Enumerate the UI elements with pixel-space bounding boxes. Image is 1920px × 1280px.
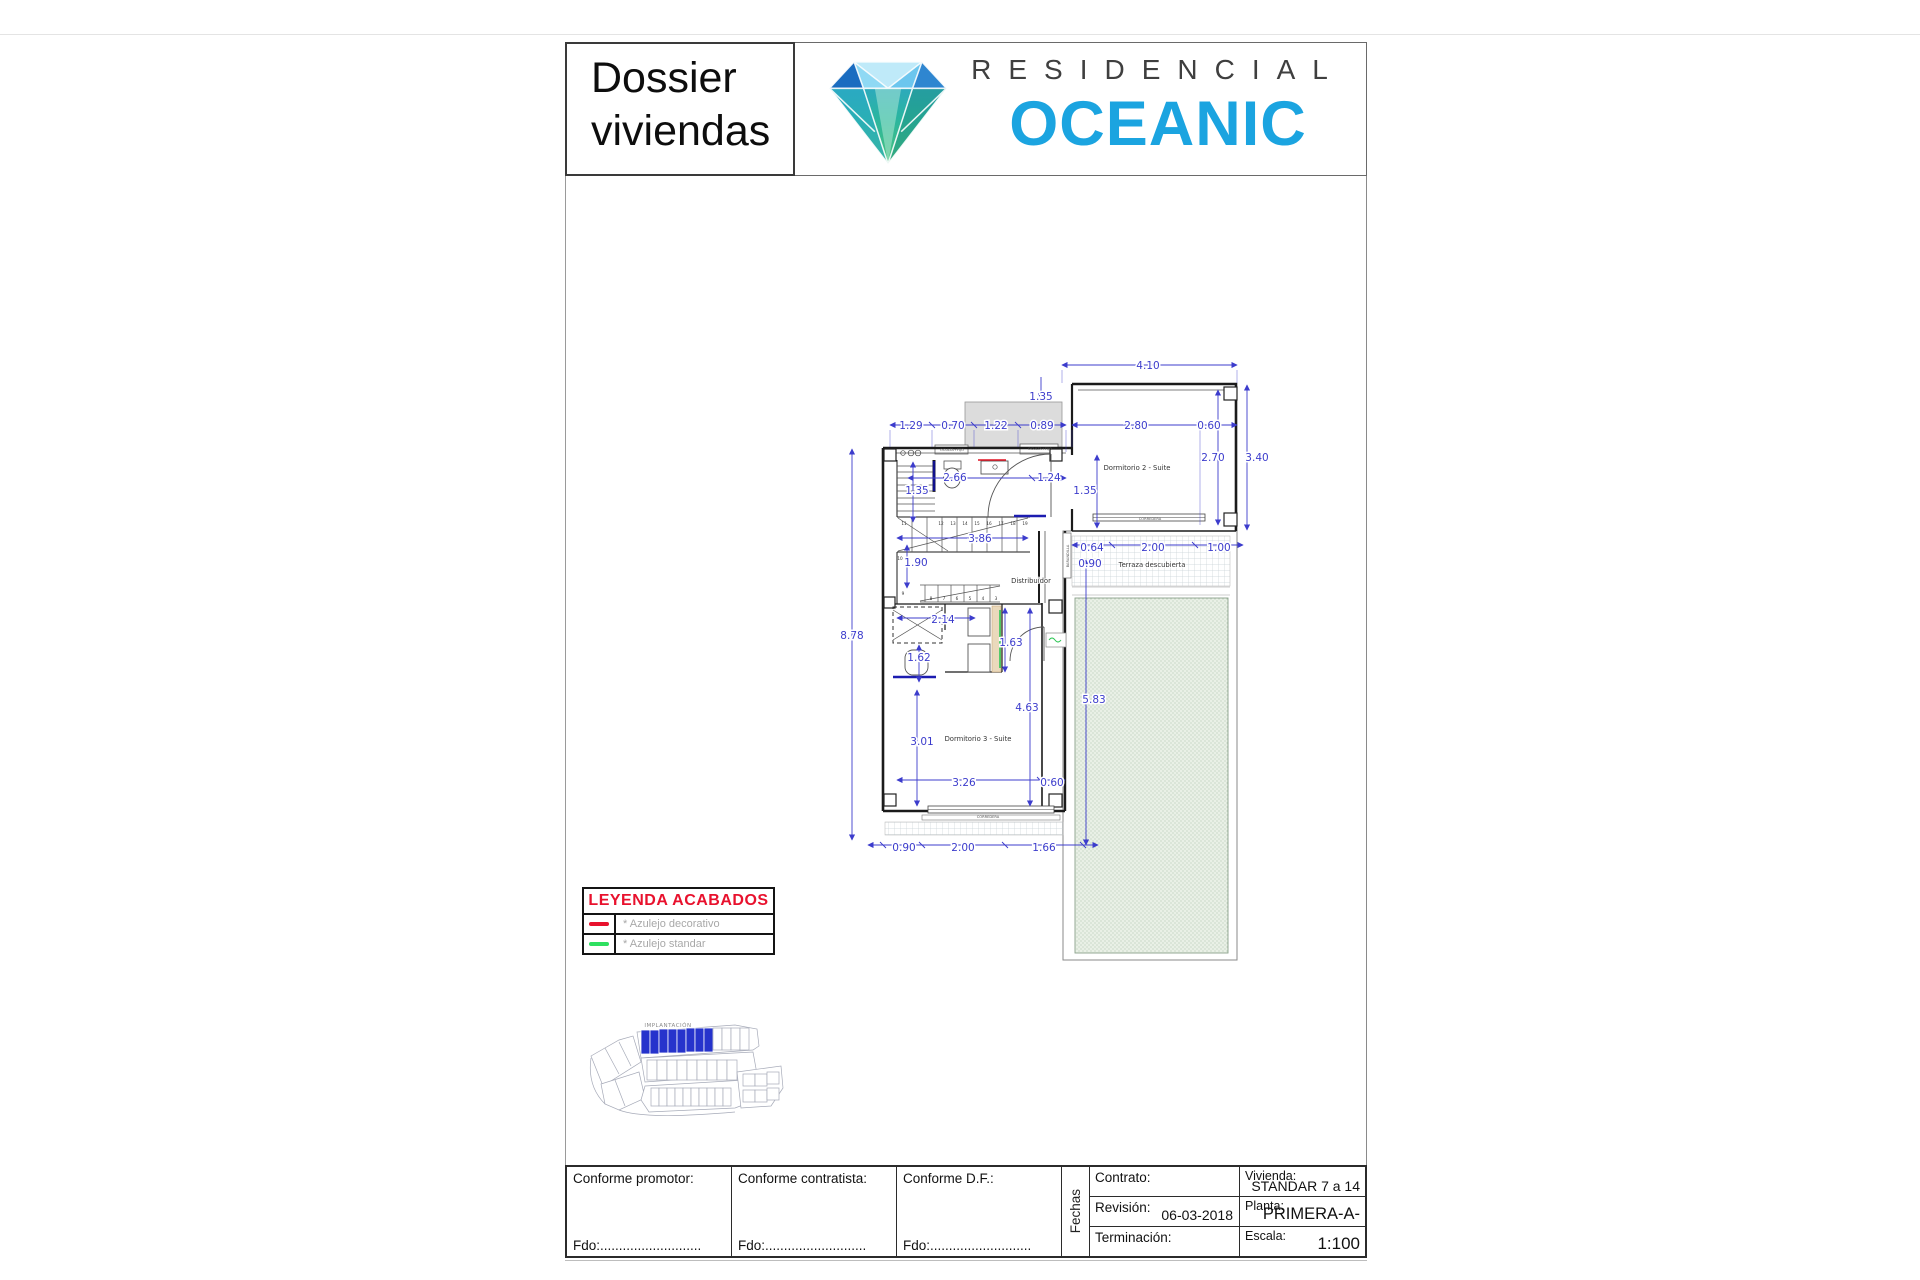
- revision-cell: Revisión: 06-03-2018: [1090, 1197, 1240, 1226]
- signature-fdo: Fdo:...........................: [903, 1238, 1031, 1253]
- dossier-sheet: Dossier viviendas: [0, 0, 1920, 1280]
- scan-hairline: [0, 34, 1920, 35]
- plan-dimension-label: 2.66: [943, 472, 967, 484]
- plan-dimension-label: 4.10: [1136, 360, 1159, 372]
- stair-number: 19: [1022, 521, 1028, 526]
- legend-title: LEYENDA ACABADOS: [588, 892, 768, 909]
- legend-label: * Azulejo standar: [616, 935, 773, 953]
- plan-dimension-label: 0.89: [1030, 420, 1053, 432]
- signature-cell-promotor: Conforme promotor: Fdo:.................…: [567, 1167, 732, 1256]
- room-label: Terraza descubierta: [1118, 561, 1186, 569]
- signature-fdo: Fdo:...........................: [573, 1238, 701, 1253]
- terrace: [1063, 531, 1237, 960]
- row-revision-planta: Revisión: 06-03-2018 Planta: PRIMERA-A-: [1090, 1197, 1365, 1227]
- plan-dimension-label: 0.64: [1080, 542, 1104, 554]
- sheet-bottom-line: [565, 1260, 1367, 1261]
- sheet-left-border: [565, 42, 566, 1165]
- revision-label: Revisión:: [1095, 1200, 1151, 1215]
- plan-dimension-label: 5.83: [1082, 694, 1105, 706]
- escala-cell: Escala: 1:100: [1240, 1227, 1365, 1256]
- legend-row-standar: * Azulejo standar: [584, 933, 773, 953]
- doc-title-line1: Dossier: [591, 52, 793, 105]
- legend-row-decorativo: * Azulejo decorativo: [584, 915, 773, 933]
- title-block: Conforme promotor: Fdo:.................…: [565, 1165, 1367, 1258]
- stair-number: 13: [950, 521, 956, 526]
- plan-dimension-label: 1.63: [999, 637, 1022, 649]
- plan-dimension-label: 0.90: [892, 842, 915, 854]
- revision-value: 06-03-2018: [1161, 1207, 1233, 1223]
- legend-swatch-cell: [584, 935, 616, 953]
- plan-dimension-label: 0.70: [941, 420, 964, 432]
- signature-cell-contratista: Conforme contratista: Fdo:..............…: [732, 1167, 897, 1256]
- title-block-table: Contrato: Vivienda: STANDAR 7 a 14 Revis…: [1090, 1167, 1365, 1256]
- plan-dimension-label: 8.78: [840, 630, 863, 642]
- plan-tiny-label: OCULTA+FIJO: [1028, 447, 1052, 451]
- signature-cell-df: Conforme D.F.: Fdo:.....................…: [897, 1167, 1062, 1256]
- stair-number: 17: [998, 521, 1004, 526]
- brand-text: RESIDENCIAL OCEANIC: [962, 54, 1354, 160]
- room-label: Distribuidor: [1011, 577, 1051, 585]
- plan-dimension-label: 2.00: [951, 842, 974, 854]
- plan-dimension-label: 3.26: [952, 777, 976, 789]
- stair-number: 7: [943, 596, 946, 601]
- legend-title-box: LEYENDA ACABADOS: [582, 887, 775, 915]
- doc-title-line2: viviendas: [591, 105, 793, 158]
- row-terminacion-escala: Terminación: Escala: 1:100: [1090, 1227, 1365, 1256]
- fechas-label: Fechas: [1068, 1189, 1083, 1233]
- legend-swatch-cell: [584, 915, 616, 933]
- room-label: Dormitorio 3 - Suite: [945, 735, 1012, 743]
- signature-label: Conforme promotor:: [573, 1171, 694, 1186]
- plan-dimension-label: 1.90: [904, 557, 927, 569]
- stair-number: 6: [956, 596, 959, 601]
- stair-number: 9: [902, 591, 905, 596]
- row-contrato-vivienda: Contrato: Vivienda: STANDAR 7 a 14: [1090, 1167, 1365, 1197]
- plan-dimension-label: 3.86: [968, 533, 992, 545]
- contrato-cell: Contrato:: [1090, 1167, 1240, 1196]
- plan-tiny-label: BARANDILLA: [1066, 544, 1070, 567]
- stair-number: 5: [969, 596, 972, 601]
- plan-dimension-label: 1.24: [1037, 472, 1061, 484]
- stair-number: 15: [974, 521, 980, 526]
- plan-tiny-label: OCULTA+FIJO: [940, 448, 964, 452]
- brand-word: RESIDENCIAL: [962, 54, 1354, 86]
- green-tile-swatch: [589, 942, 609, 946]
- stair-number: 4: [982, 596, 985, 601]
- porch-tiles: [885, 822, 1063, 835]
- stair-number: 3: [995, 596, 998, 601]
- stair-number: 8: [930, 596, 933, 601]
- stair-number: 16: [986, 521, 992, 526]
- doc-title: Dossier viviendas: [567, 44, 793, 158]
- plan-dimension-label: 0.60: [1197, 420, 1220, 432]
- doc-title-box: Dossier viviendas: [565, 42, 795, 176]
- escala-label: Escala:: [1245, 1229, 1286, 1243]
- site-plan-label: IMPLANTACIÓN: [644, 1022, 691, 1029]
- finishes-legend: LEYENDA ACABADOS * Azulejo decorativo * …: [582, 887, 775, 955]
- plan-dimension-label: 0.60: [1040, 777, 1063, 789]
- plan-dimension-label: 1.22: [984, 420, 1007, 432]
- signature-label: Conforme contratista:: [738, 1171, 867, 1186]
- signature-label: Conforme D.F.:: [903, 1171, 994, 1186]
- fechas-cell: Fechas: [1062, 1167, 1090, 1256]
- planta-value: PRIMERA-A-: [1263, 1205, 1360, 1224]
- plan-tiny-label: CORREDERA: [1139, 517, 1162, 521]
- planta-cell: Planta: PRIMERA-A-: [1240, 1197, 1365, 1226]
- contrato-label: Contrato:: [1095, 1170, 1151, 1185]
- stair-number: 10: [897, 556, 903, 561]
- plan-dimension-label: 0.90: [1078, 558, 1101, 570]
- plan-dimension-label: 1.35: [905, 485, 928, 497]
- site-plan: IMPLANTACIÓN: [585, 1016, 787, 1124]
- plan-dimension-label: 2.14: [931, 614, 955, 626]
- signature-fdo: Fdo:...........................: [738, 1238, 866, 1253]
- stair-number: 11: [901, 521, 907, 526]
- plan-dimension-label: 1.35: [1029, 391, 1052, 403]
- plan-dimension-label: 3.01: [910, 736, 933, 748]
- red-tile-swatch: [589, 922, 609, 926]
- stair-number: 14: [962, 521, 968, 526]
- plan-dimension-label: 1.29: [899, 420, 922, 432]
- vivienda-value: STANDAR 7 a 14: [1251, 1178, 1360, 1194]
- brand-name: OCEANIC: [962, 88, 1354, 160]
- terminacion-label: Terminación:: [1095, 1230, 1172, 1245]
- plan-tiny-label: CORREDERA: [977, 815, 1000, 819]
- plan-dimension-label: 3.40: [1245, 452, 1268, 464]
- floor-plan: Dormitorio 2 - SuiteTerraza descubiertaD…: [840, 330, 1280, 980]
- plan-dimension-label: 2.80: [1124, 420, 1147, 432]
- legend-label: * Azulejo decorativo: [616, 915, 773, 933]
- plan-dimension-label: 1.62: [907, 652, 930, 664]
- highlighted-plots: [641, 1028, 713, 1054]
- plan-dimension-label: 1.66: [1032, 842, 1056, 854]
- plan-dimension-label: 4.63: [1015, 702, 1038, 714]
- plan-dimension-label: 2.70: [1201, 452, 1224, 464]
- plan-dimension-label: 1.00: [1207, 542, 1230, 554]
- room-label: Dormitorio 2 - Suite: [1104, 464, 1171, 472]
- terminacion-cell: Terminación:: [1090, 1227, 1240, 1256]
- sheet-right-border: [1366, 42, 1367, 1258]
- vivienda-cell: Vivienda: STANDAR 7 a 14: [1240, 1167, 1365, 1196]
- plan-dimension-label: 1.35: [1073, 485, 1096, 497]
- stair-number: 18: [1010, 521, 1016, 526]
- escala-value: 1:100: [1317, 1234, 1360, 1254]
- stair-number: 12: [938, 521, 944, 526]
- plan-dimension-label: 2.00: [1141, 542, 1164, 554]
- diamond-logo-icon: [822, 48, 954, 172]
